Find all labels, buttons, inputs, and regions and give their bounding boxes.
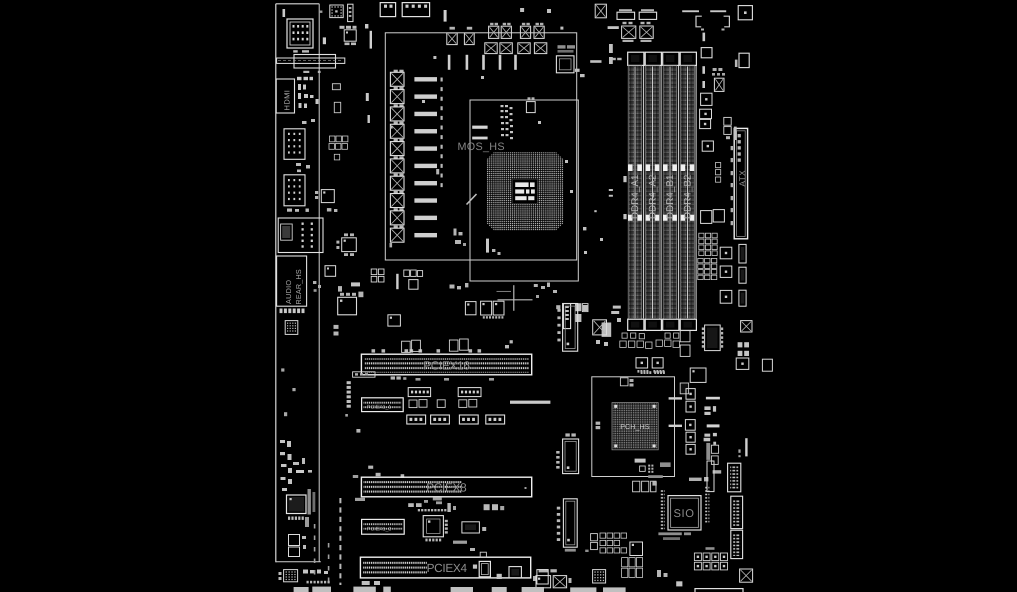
svg-text:REAR_HS: REAR_HS	[294, 269, 303, 304]
svg-text:PCIEX1_2: PCIEX1_2	[367, 527, 391, 533]
svg-text:PCIEX16: PCIEX16	[423, 358, 470, 372]
svg-text:PCIEX4: PCIEX4	[427, 561, 468, 575]
svg-text:DDR4_B1: DDR4_B1	[665, 174, 676, 219]
svg-text:HDMI: HDMI	[283, 90, 292, 111]
svg-text:DDR4_B2: DDR4_B2	[683, 174, 694, 219]
svg-text:SIO: SIO	[673, 508, 694, 520]
svg-text:AUDIO: AUDIO	[284, 280, 293, 304]
svg-text:ATX: ATX	[738, 170, 747, 187]
svg-text:PCH_HS: PCH_HS	[620, 424, 650, 431]
svg-text:DDR4_A2: DDR4_A2	[648, 174, 659, 219]
svg-text:MOS_HS: MOS_HS	[458, 141, 505, 153]
svg-text:PCIEX8: PCIEX8	[426, 480, 467, 494]
svg-text:DDR4_A1: DDR4_A1	[630, 174, 641, 219]
svg-text:PCIEX1_1: PCIEX1_1	[367, 405, 391, 411]
